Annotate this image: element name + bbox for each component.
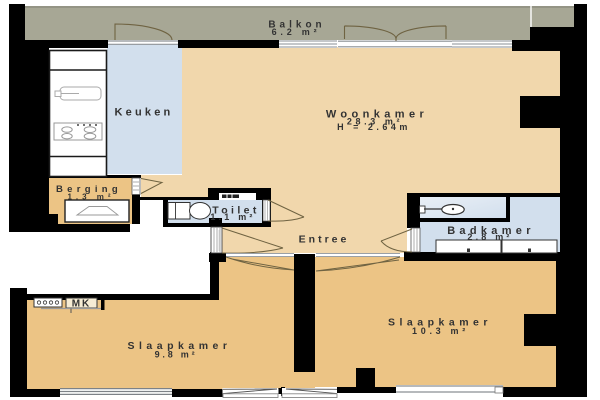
svg-text:1.1 m²: 1.1 m² [210, 212, 255, 222]
svg-text:9.8 m²: 9.8 m² [155, 350, 198, 360]
svg-text:6.2 m²: 6.2 m² [272, 27, 321, 37]
svg-text:Entree: Entree [299, 234, 350, 246]
svg-text:10.3 m²: 10.3 m² [412, 326, 469, 336]
svg-text:1.3 m²: 1.3 m² [67, 192, 114, 201]
svg-text:2.8 m²: 2.8 m² [467, 232, 512, 242]
svg-text:MK: MK [72, 299, 92, 310]
svg-text:H = 2.64m: H = 2.64m [337, 122, 411, 132]
svg-text:Keuken: Keuken [115, 107, 174, 119]
